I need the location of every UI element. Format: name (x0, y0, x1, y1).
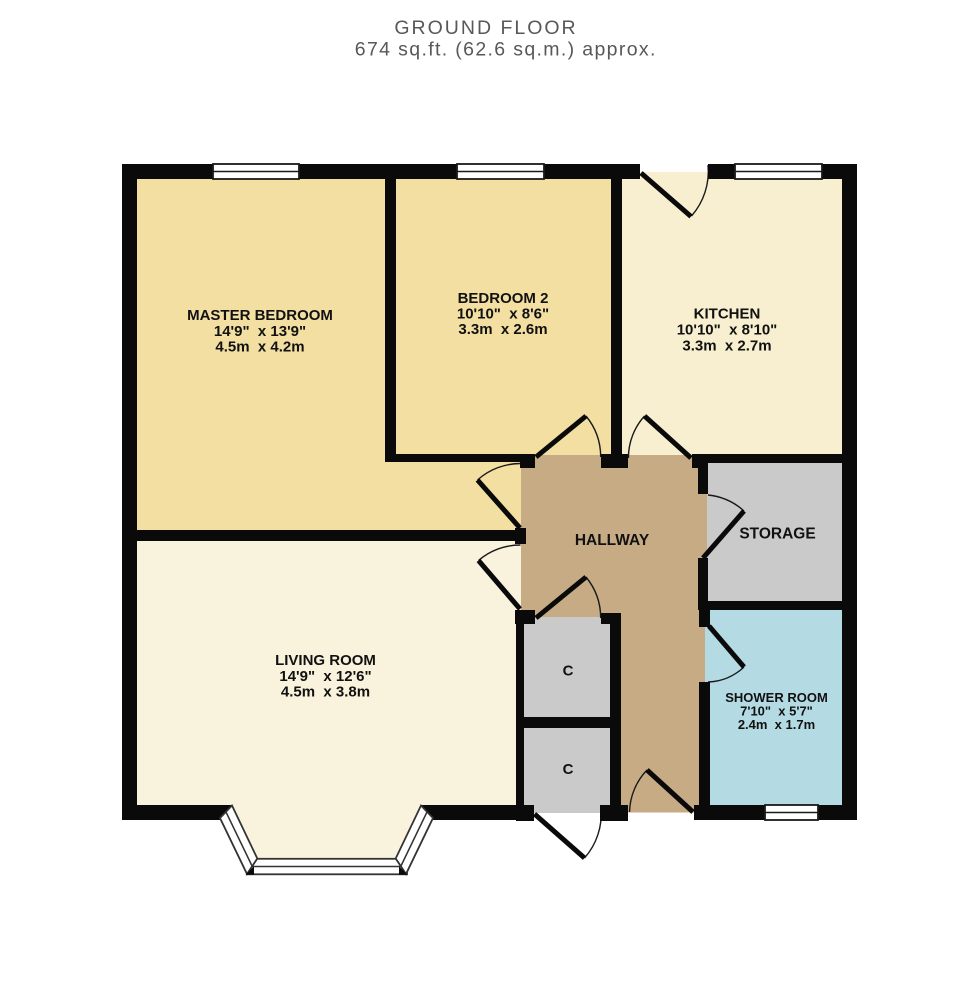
svg-text:HALLWAY: HALLWAY (575, 532, 650, 549)
svg-text:LIVING ROOM: LIVING ROOM (275, 652, 376, 669)
svg-text:C: C (563, 663, 574, 680)
svg-text:KITCHEN: KITCHEN (694, 306, 761, 323)
svg-text:14'9" x 12'6": 14'9" x 12'6" (279, 668, 371, 685)
svg-text:674 sq.ft. (62.6 sq.m.) approx: 674 sq.ft. (62.6 sq.m.) approx. (355, 38, 657, 60)
svg-text:BEDROOM 2: BEDROOM 2 (458, 290, 549, 307)
svg-text:MASTER BEDROOM: MASTER BEDROOM (187, 307, 333, 324)
svg-text:2.4m x 1.7m: 2.4m x 1.7m (738, 717, 815, 732)
svg-text:4.5m x 4.2m: 4.5m x 4.2m (215, 339, 304, 356)
svg-text:14'9" x 13'9": 14'9" x 13'9" (214, 323, 306, 340)
svg-text:3.3m x 2.6m: 3.3m x 2.6m (458, 321, 547, 338)
svg-text:4.5m x 3.8m: 4.5m x 3.8m (281, 684, 370, 701)
svg-text:3.3m x 2.7m: 3.3m x 2.7m (682, 338, 771, 355)
svg-text:GROUND FLOOR: GROUND FLOOR (394, 17, 577, 39)
svg-text:STORAGE: STORAGE (739, 526, 815, 543)
svg-text:10'10" x 8'10": 10'10" x 8'10" (677, 322, 778, 339)
svg-text:10'10" x 8'6": 10'10" x 8'6" (457, 306, 549, 323)
svg-text:C: C (563, 761, 574, 778)
